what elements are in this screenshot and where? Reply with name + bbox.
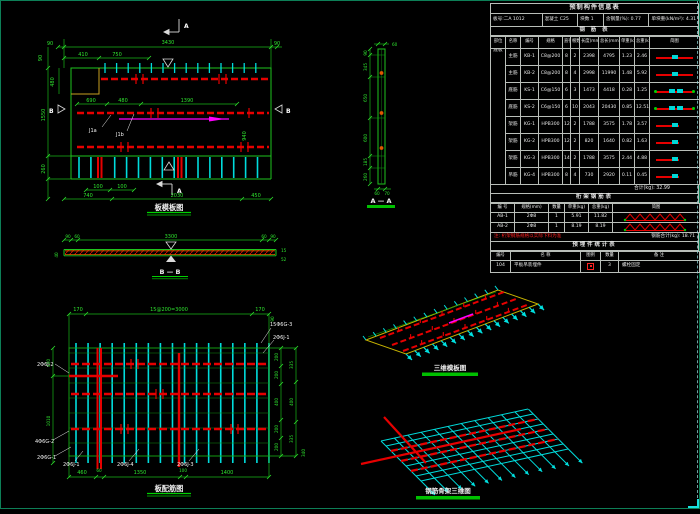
cell-spec: HPB300 <box>539 151 563 168</box>
level-symbol <box>164 162 174 170</box>
cell-dia: 8 <box>563 49 571 66</box>
embed-square-icon <box>587 263 594 270</box>
dim-label: 52 <box>281 257 287 262</box>
cell-n: 2 <box>571 151 580 168</box>
section-header-truss: 桁架钢筋表 <box>490 194 699 203</box>
dim-label: 90 <box>47 41 53 47</box>
col-header: 数量 <box>549 204 565 213</box>
col-header: 总重(kg) <box>589 204 613 213</box>
cell-total: 4418 <box>599 83 620 100</box>
section-header-rebar: 钢 筋 表 <box>490 27 699 36</box>
iso-formwork-drawing: 三维模板图 <box>363 286 544 376</box>
cell-len: 820 <box>580 134 599 151</box>
cell-spec: HPB300 <box>539 134 563 151</box>
dim-label: 60 <box>261 234 267 239</box>
dim-label: 3300 <box>165 234 178 240</box>
cell-name: 架筋 <box>506 134 521 151</box>
cell-dia: 8 <box>563 168 571 185</box>
cell-name: 底筋 <box>506 100 521 117</box>
dim-label: 3430 <box>162 40 175 46</box>
col-header: 名 称 <box>511 252 581 261</box>
embed-legend <box>581 261 601 273</box>
cell-name: 架筋 <box>506 117 521 134</box>
sketch-cell <box>650 117 700 134</box>
info-cell: 块数 1 <box>578 14 604 26</box>
col-header: 编号 <box>521 37 539 49</box>
info-cell: 混凝土 C25 <box>543 14 579 26</box>
col-header: 根数 <box>571 37 580 49</box>
dim-label: 450 <box>251 193 261 199</box>
bar-sketch-short <box>653 121 696 130</box>
dim-label: 480 <box>50 77 56 87</box>
bar-callout: 15Φ6G-3 <box>270 322 292 328</box>
col-header: 总长(mm) <box>599 37 620 49</box>
section-letter: A <box>184 23 189 30</box>
cell-dia: 12 <box>563 117 571 134</box>
dim-label: 480 <box>118 98 128 104</box>
level-symbol <box>163 59 173 67</box>
bar-sketch-dots <box>653 87 696 96</box>
dim-label: 185 <box>363 158 368 166</box>
dim-label: 200 <box>274 371 279 379</box>
drawing-title: 板模板图 <box>155 203 184 212</box>
info-row: 板号:二A 1012 混凝土 C25 块数 1 含钢量(%): 0.77 单块重… <box>490 14 699 27</box>
dim-label: 200 <box>274 425 279 433</box>
dim-label: 60 <box>96 468 102 473</box>
dim-label: 170 <box>255 307 265 313</box>
sheet-edge-dashed <box>697 1 698 508</box>
distribution-bars <box>76 343 269 463</box>
bar-callout: 2Φ6J-3 <box>177 462 194 468</box>
cell-n: 2 <box>571 134 580 151</box>
cell-len: 2398 <box>580 49 599 66</box>
dim-label: 260 <box>363 173 368 181</box>
dim-label: 90 <box>38 55 44 61</box>
drawing-title: B — B <box>160 268 181 276</box>
dim-label: 1350 <box>134 470 147 476</box>
cell-no: KS-1 <box>521 83 539 100</box>
truss-sketch <box>613 213 700 223</box>
cell-tw: 0.45 <box>635 168 650 185</box>
cell-dia: 12 <box>563 134 571 151</box>
section-mark-b-right <box>275 105 282 113</box>
level-symbol <box>166 242 176 249</box>
cell-tw: 11.82 <box>589 213 613 223</box>
sketch-cell <box>650 49 700 66</box>
dim-label: 340 <box>301 449 306 457</box>
cell-tw: 1.63 <box>635 134 650 151</box>
cell-total: 20430 <box>599 100 620 117</box>
cell-n: 3 <box>571 83 580 100</box>
sketch-cell <box>650 151 700 168</box>
dim-label: 600 <box>363 134 368 142</box>
cell-name: 主筋 <box>506 49 521 66</box>
bar-callout: 2Φ6J-2 <box>37 362 54 368</box>
dim-label: 1400 <box>221 470 234 476</box>
cell-uw: 5.91 <box>565 213 589 223</box>
cell-dia: 14 <box>563 151 571 168</box>
cell-spec: C8@200 <box>539 49 563 66</box>
col-header: 直径 <box>563 37 571 49</box>
dim-label: 100 <box>93 184 103 190</box>
cell-n: 4 <box>571 168 580 185</box>
dim-label: 400 <box>274 398 279 406</box>
dim-label: 690 <box>86 98 96 104</box>
cell-dia: 6 <box>563 83 571 100</box>
bar-callout: 2Φ6J-4 <box>117 462 134 468</box>
cell-n: 10 <box>571 100 580 117</box>
dim-label: 40 <box>54 252 59 258</box>
cell-len: 730 <box>580 168 599 185</box>
rebar-row: 吊筋KG-4HPB3008473029200.110.45 <box>491 168 700 185</box>
embed-row: 104 平板吊装埋件 3 螺栓固定 <box>491 261 700 273</box>
bar-callout: 4Φ6G-2 <box>35 439 54 445</box>
col-header: 部位 <box>491 37 506 49</box>
rebar-row: 架筋KG-3HPB300142178835752.444.88 <box>491 151 700 168</box>
level-symbol <box>166 256 176 263</box>
dim-label: 335 <box>289 435 294 443</box>
cell-name: 主筋 <box>506 66 521 83</box>
cell-len: 2043 <box>580 100 599 117</box>
dim-label: 200 <box>274 353 279 361</box>
cell-n: 2 <box>571 117 580 134</box>
cell-tw: 5.92 <box>635 66 650 83</box>
cell-tw: 2.46 <box>635 49 650 66</box>
cell-name: 吊筋 <box>506 168 521 185</box>
dim-label: 460 <box>77 470 87 476</box>
col-header: 规格(mm) <box>515 204 549 213</box>
dim-label: 335 <box>289 361 294 369</box>
cell-no: KS-2 <box>521 100 539 117</box>
dim-label: 15 <box>281 248 287 253</box>
truss-sketch <box>613 223 700 233</box>
dim-label: 410 <box>78 52 88 58</box>
cell-spec: HPB300 <box>539 168 563 185</box>
cell-no: AB-1 <box>491 213 515 223</box>
section-mark-b-left <box>58 105 65 113</box>
cell-total: 3575 <box>599 117 620 134</box>
cell-tw: 4.88 <box>635 151 650 168</box>
dim-label: 100 <box>117 184 127 190</box>
cell-spec: HPB300 <box>539 117 563 134</box>
section-letter: B <box>286 108 291 115</box>
cell-len: 1473 <box>580 83 599 100</box>
cell-tw: 12.51 <box>635 100 650 117</box>
cell-total: 2920 <box>599 168 620 185</box>
cell-uw: 2.44 <box>620 151 635 168</box>
section-mark-a-top <box>164 19 179 35</box>
col-header: 数量 <box>601 252 619 261</box>
dim-label: 170 <box>73 307 83 313</box>
truss-row: AB-12Φ815.9111.82 <box>491 213 700 223</box>
col-header: 简图 <box>613 204 700 213</box>
section-aa-drawing: 60 90 345 650 600 185 260 60 70 A — A <box>363 42 398 208</box>
cell-no: AB-2 <box>491 223 515 233</box>
cell-spec: 2Φ8 <box>515 223 549 233</box>
col-header: 单重(kg) <box>565 204 589 213</box>
formwork-plan-drawing: 90 3430 90 410 750 90 480 1550 260 690 4… <box>38 19 291 215</box>
cell-uw: 1.48 <box>620 66 635 83</box>
cell-dia: 8 <box>563 66 571 83</box>
bar-callout: 2Φ6G-1 <box>37 455 56 461</box>
iso-conduit <box>449 314 473 323</box>
sketch-cell <box>650 66 700 83</box>
col-header: 长度(mm) <box>580 37 599 49</box>
cell-uw: 0.85 <box>620 100 635 117</box>
cell-no: KG-1 <box>521 117 539 134</box>
table-note: 注: 桁架钢筋规格以实际下料为准 <box>494 235 561 240</box>
cell-spec: C8@200 <box>539 66 563 83</box>
drawing-title: 板配筋图 <box>155 484 184 493</box>
cell-name: 架筋 <box>506 151 521 168</box>
cell-dia: 6 <box>563 100 571 117</box>
sheet-corner-mark <box>688 499 699 508</box>
sketch-cell <box>650 83 700 100</box>
note-row: 注: 桁架钢筋规格以实际下料为准 钢筋合计(kg): 18.71 <box>490 233 699 242</box>
dim-label: 1390 <box>181 98 194 104</box>
col-header: 单重(kg) <box>620 37 635 49</box>
sketch-cell <box>650 100 700 117</box>
cell-spec: C6@150 <box>539 100 563 117</box>
cell-total: 11990 <box>599 66 620 83</box>
cell-tw: 1.25 <box>635 83 650 100</box>
rebar-row: 架筋KG-1HPB300122178835751.783.57 <box>491 117 700 134</box>
dim-label: 90 <box>65 234 71 239</box>
drawing-title: 三维模板图 <box>434 363 467 372</box>
dim-label: 1010 <box>46 415 51 426</box>
cell-uw: 0.28 <box>620 83 635 100</box>
bar-sketch-long <box>653 70 696 79</box>
drawing-title: A — A <box>370 197 391 205</box>
bar-sketch-short <box>653 155 696 164</box>
info-cell: 板号:二A 1012 <box>491 14 543 26</box>
col-header: 名称 <box>506 37 521 49</box>
cell-no: KG-2 <box>521 134 539 151</box>
dim-label: 90 <box>363 50 368 56</box>
cell-n: 4 <box>571 66 580 83</box>
cell-tw: 3.57 <box>635 117 650 134</box>
truss-row: AB-22Φ818.198.19 <box>491 223 700 233</box>
col-header: 编号 <box>491 252 511 261</box>
dim-label: 345 <box>363 63 368 71</box>
bar-sketch-short <box>653 138 696 147</box>
info-cell: 单块重(kN/m²): 4.31 <box>649 14 698 26</box>
bar-sketch-long <box>653 53 696 62</box>
dim-label: 90 <box>270 234 276 239</box>
cell-no: KB-1 <box>521 49 539 66</box>
section-letter: B <box>49 108 54 115</box>
sketch-cell <box>650 168 700 185</box>
cell-spec: C6@150 <box>539 83 563 100</box>
cell-spec: 2Φ8 <box>515 213 549 223</box>
dim-label: 260 <box>41 164 47 174</box>
bar-callout: 2Φ6J-1 <box>273 335 290 341</box>
cell-len: 1788 <box>580 117 599 134</box>
cell-no: KB-2 <box>521 66 539 83</box>
drawing-title: 钢筋骨架三维图 <box>425 486 471 495</box>
dim-label: 650 <box>363 94 368 102</box>
cell-total: 3575 <box>599 151 620 168</box>
component-info-table: 预制构件信息表 板号:二A 1012 混凝土 C25 块数 1 含钢量(%): … <box>490 3 699 273</box>
col-header: 简图 <box>650 37 700 49</box>
dim-label: 60 <box>74 234 80 239</box>
cell-uw: 0.82 <box>620 134 635 151</box>
cell-no: KG-3 <box>521 151 539 168</box>
dim-label: 70 <box>384 191 390 196</box>
cell-n: 1 <box>549 213 565 223</box>
cell-name: 底筋 <box>506 83 521 100</box>
cell-uw: 8.19 <box>565 223 589 233</box>
cell-total: 1640 <box>599 134 620 151</box>
dim-label: 60 <box>392 42 398 47</box>
dim-label: 15@200=3000 <box>150 307 188 313</box>
cell-len: 1788 <box>580 151 599 168</box>
rebar-schedule-table: 部位 名称 编号 规格 直径 根数 长度(mm) 总长(mm) 单重(kg) 总… <box>490 36 700 185</box>
cad-sheet: 90 3430 90 410 750 90 480 1550 260 690 4… <box>0 0 700 509</box>
dim-label: 1550 <box>41 109 47 122</box>
bar-callout: J1a <box>88 128 97 134</box>
cell-tw: 8.19 <box>589 223 613 233</box>
cell-no: KG-4 <box>521 168 539 185</box>
conduit-line <box>119 117 229 122</box>
cell-n: 2 <box>571 49 580 66</box>
dim-label: 90 <box>274 41 280 47</box>
cell-note: 螺栓固定 <box>619 261 700 273</box>
cell-uw: 1.78 <box>620 117 635 134</box>
cell-no: 104 <box>491 261 511 273</box>
truss-schedule-table: 编 号 规格(mm) 数量 单重(kg) 总重(kg) 简图 AB-12Φ815… <box>490 203 700 233</box>
dim-label: 200 <box>274 443 279 451</box>
bar-callout: 2Φ6J-1 <box>63 462 80 468</box>
table-title: 预制构件信息表 <box>490 3 699 14</box>
truss-total: 钢筋合计(kg): 18.71 <box>651 235 695 240</box>
dim-label: 60 <box>374 191 380 196</box>
section-header-embed: 预埋件统计表 <box>490 242 699 251</box>
embed-schedule-table: 编号 名 称 图例 数量 备 注 104 平板吊装埋件 3 螺栓固定 <box>490 251 700 273</box>
cell-total: 4795 <box>599 49 620 66</box>
section-letter: A <box>177 188 182 195</box>
rebar-row: 底板主筋KB-1C8@20082239847951.232.46 <box>491 49 700 66</box>
cell-qty: 3 <box>601 261 619 273</box>
bar-callout: J1b <box>115 132 124 138</box>
rebar-row: 架筋KG-2HPB30012282016400.821.63 <box>491 134 700 151</box>
bar-sketch-short <box>653 172 696 181</box>
col-header: 总重(kg) <box>635 37 650 49</box>
cell-name: 平板吊装埋件 <box>511 261 581 273</box>
sketch-cell <box>650 134 700 151</box>
dim-label: 740 <box>83 193 93 199</box>
col-header: 编 号 <box>491 204 515 213</box>
cell-uw: 0.11 <box>620 168 635 185</box>
rebar-row: 主筋KB-2C8@200842998119901.485.92 <box>491 66 700 83</box>
group-cell: 底板 <box>491 49 506 185</box>
rebar-row: 底筋KS-1C6@15063147344180.281.25 <box>491 83 700 100</box>
bar-sketch-dots <box>653 104 696 113</box>
col-header: 备 注 <box>619 252 700 261</box>
dim-label: 400 <box>289 398 294 406</box>
cell-len: 2998 <box>580 66 599 83</box>
cell-uw: 1.23 <box>620 49 635 66</box>
iso-rebar-cage-drawing: 钢筋骨架三维图 <box>361 409 582 500</box>
info-cell: 含钢量(%): 0.77 <box>604 14 650 26</box>
col-header: 图例 <box>581 252 601 261</box>
dim-label: 940 <box>242 131 248 141</box>
dim-label: 750 <box>112 52 122 58</box>
cell-n: 1 <box>549 223 565 233</box>
col-header: 规格 <box>539 37 563 49</box>
rebar-row: 底筋KS-2C6@1506102043204300.8512.51 <box>491 100 700 117</box>
dim-label: 100 <box>179 468 187 473</box>
cyan-bars-bottom <box>79 157 258 178</box>
dim-label: 90 <box>270 316 275 322</box>
rebar-lines <box>77 79 269 147</box>
section-bb-drawing: 90 60 3300 60 90 40 15 52 B — B <box>54 234 287 279</box>
rebar-total: 合计(kg): 32.99 <box>490 185 699 194</box>
rebar-plan-drawing: 170 15@200=3000 170 90 200 200 400 200 2… <box>35 307 306 496</box>
